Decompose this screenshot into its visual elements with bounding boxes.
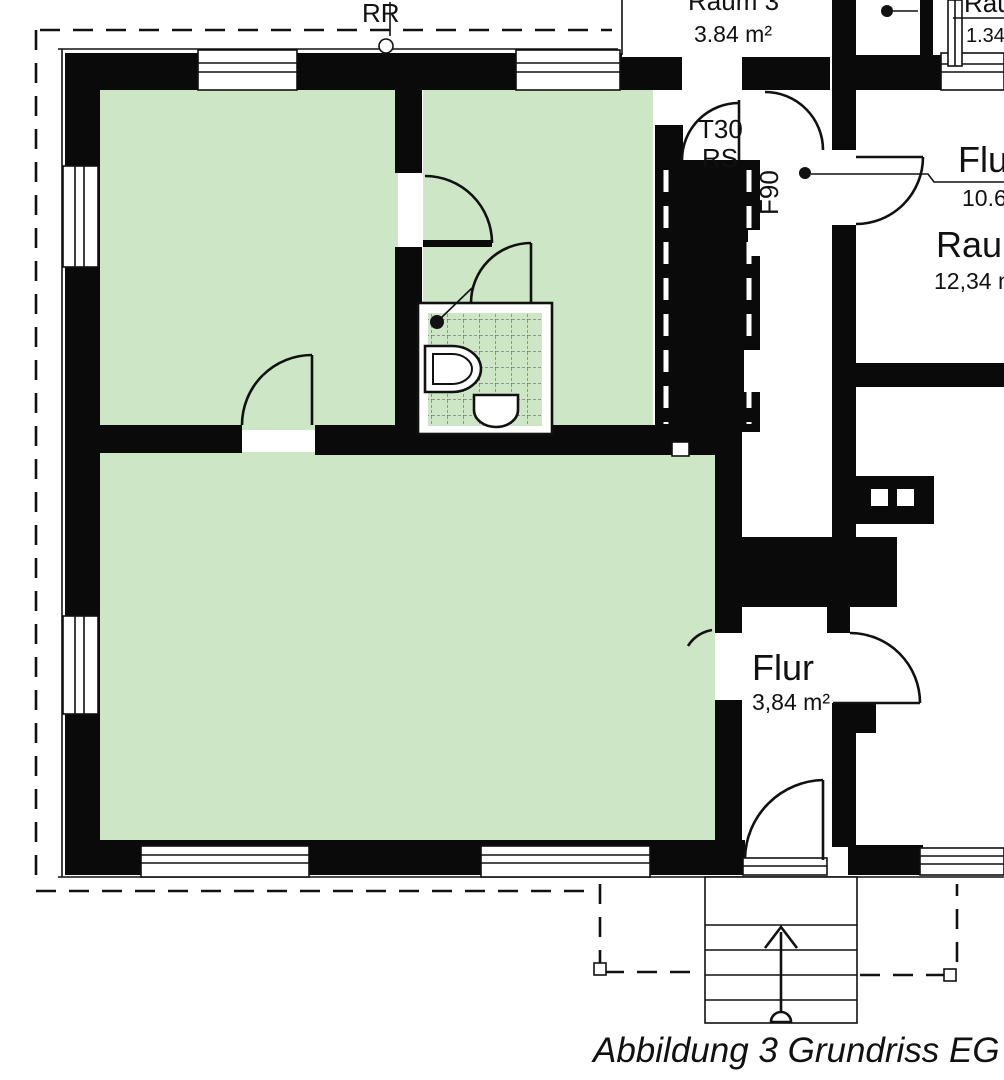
door-right-wing [856,157,923,224]
flur-small-area: 3,84 m² [752,689,830,715]
middle-wall-left [95,425,242,453]
figure-caption: Abbildung 3 Grundriss EG [591,1031,1000,1070]
t30-label-line2: RS [702,143,738,173]
room-top-name: Raum 3 [688,0,779,16]
window-left-1 [63,166,98,267]
room-top-right-area: 1.34 [966,25,1004,47]
stairs-start-mark [771,1012,791,1022]
bathroom [418,288,552,434]
shaft-notch-lower [744,350,760,392]
boundary-corner-mark-right [944,969,956,981]
flur-left-wall-upper [715,455,742,633]
room-fill-bottom [95,452,715,842]
rr-label: RR [362,0,400,28]
flur-right-name: Flur [958,139,1004,180]
right-wing-bottom-wall [848,845,923,875]
window-top-right-partition [948,0,962,66]
middle-wall-opening-mark [672,442,689,456]
right-wing-mid-wall [856,363,1004,387]
window-top-1 [198,50,297,90]
door-flur-right [833,633,920,703]
flur-right-wall-corner [832,703,876,733]
raum-right-area: 12,34 m² [934,268,1004,294]
door-flur-bottom [743,780,827,875]
room-fill-top-left [95,85,398,430]
window-bottom-right-wing [920,848,1004,875]
top-right-partition-wall [920,0,933,55]
raum-right-name: Raum [936,224,1004,265]
flur-right-area: 10.68 [962,185,1004,211]
room-top-right-name: Raum [964,0,1004,18]
right-wing-top-wall [856,55,943,90]
f90-label: F90 [754,170,784,215]
shaft-notch-upper [748,230,760,256]
t30-door-opening [682,55,742,92]
corridor-bottom-wall-block [740,537,897,607]
room-top-area: 3.84 m² [694,21,772,47]
top-right-leader-dot [881,5,893,17]
door-corridor-top [765,92,823,150]
flur-small-name: Flur [752,647,814,688]
duct-opening-left [871,489,888,506]
window-bottom-2 [481,846,650,877]
flur-right-wall-lower [832,733,856,847]
sink [474,395,518,427]
rr-pipe-symbol [379,39,393,53]
floorplan-page: RR Raum 3 3.84 m² Raum 1.34 T30 RS F90 F… [0,0,1004,1080]
flur-leader-dot [799,167,811,179]
flur-right-wall-stub [827,607,850,633]
window-bottom-1 [141,846,309,877]
boundary-corner-mark-left [594,963,606,975]
window-top-2 [516,50,620,90]
t30-label-line1: T30 [698,114,743,144]
flur-left-wall-lower [715,700,742,860]
duct-opening-right [897,489,914,506]
interior-wall-vertical-upper [395,90,422,173]
corridor-right-wall-upper [832,0,856,150]
shaft-step [655,125,683,163]
floorplan-drawing: RR Raum 3 3.84 m² Raum 1.34 T30 RS F90 F… [0,0,1004,1080]
exterior-stairs [705,877,857,1023]
duct-block [848,476,934,524]
window-left-2 [63,616,98,714]
